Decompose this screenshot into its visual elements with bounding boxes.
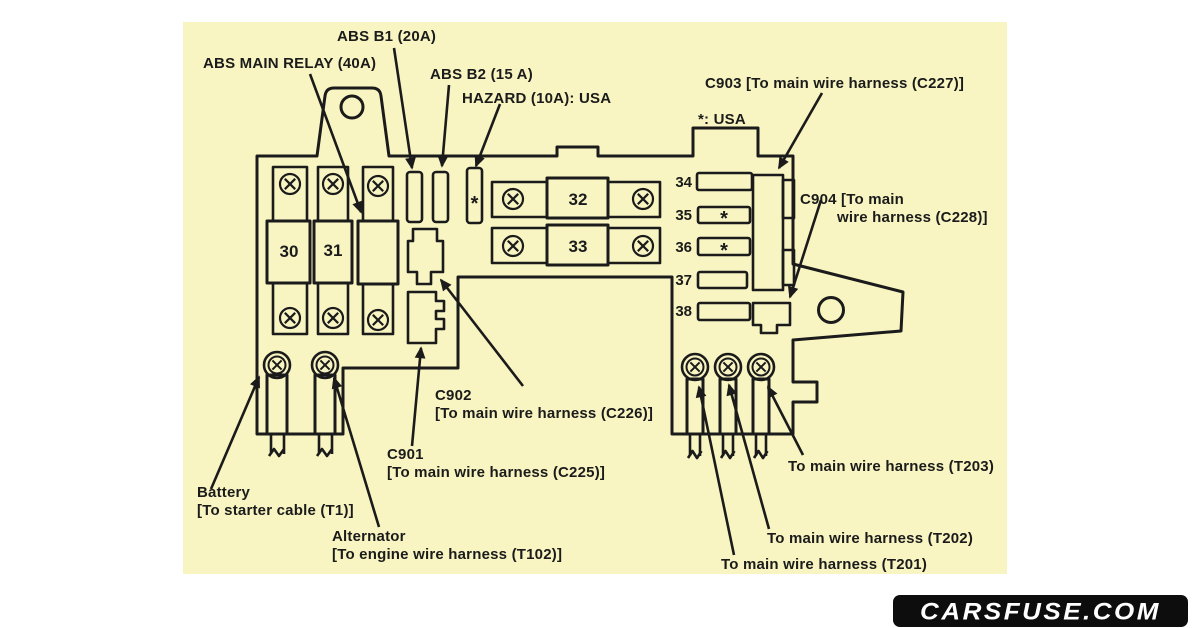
screw-icon [368,310,388,330]
fuse-32-number: 32 [569,190,588,209]
terminal-screw-icon [715,354,741,380]
terminal-wire-t202 [721,434,735,458]
usa-note-label: *: USA [698,111,746,128]
terminal-post-t201 [687,379,703,434]
leader-battery [211,377,259,489]
c902-desc-label: [To main wire harness (C226)] [435,405,653,422]
terminal-screw-icon [748,354,774,380]
alternator-desc-label: [To engine wire harness (T102)] [332,546,562,563]
fuse-box-diagram: 30 31 * 32 33 34 35 36 37 38 * [0,0,1200,628]
t203-label: To main wire harness (T203) [788,458,994,475]
screw-icon [368,176,388,196]
fuse-30-number: 30 [280,242,299,261]
fuse-36-asterisk: * [720,240,728,262]
t201-label: To main wire harness (T201) [721,556,927,573]
battery-terminal-post [267,375,287,434]
terminal-wire-t201 [688,434,702,458]
leader-abs-b2 [442,85,449,166]
battery-name-label: Battery [197,484,251,501]
fuse-35-asterisk: * [720,208,728,230]
leader-c903 [779,93,822,168]
abs-b2-label: ABS B2 (15 A) [430,66,533,83]
mounting-hole-top-icon [341,96,363,118]
fuse-37 [698,272,747,288]
battery-desc-label: [To starter cable (T1)] [197,502,354,519]
c901-name-label: C901 [387,446,424,463]
terminal-screw-icon [682,354,708,380]
terminal-wire-t203 [754,434,768,458]
screw-icon [633,236,653,256]
terminal-post-t203 [753,379,769,434]
connector-c902 [408,229,443,284]
c904-label-line1: C904 [To main [800,191,904,208]
screw-icon [280,174,300,194]
hazard-asterisk: * [471,193,479,215]
terminal-screw-icon [312,352,338,378]
battery-wire [269,434,284,456]
leader-c901 [412,348,421,446]
fuse-36-number: 36 [675,239,692,256]
fuse-34 [697,173,752,190]
alternator-name-label: Alternator [332,528,406,545]
abs-b1-label: ABS B1 (20A) [337,28,436,45]
c904-label-line2: wire harness (C228)] [836,209,988,226]
leader-abs-b1 [394,48,412,168]
fuse-abs-b2 [433,172,448,222]
c901-desc-label: [To main wire harness (C225)] [387,464,605,481]
alternator-terminal-post [315,375,335,434]
mounting-hole-bracket-icon [819,298,844,323]
screw-icon [633,189,653,209]
leader-c902 [441,280,523,386]
fuse-abs-b1 [407,172,422,222]
fuse-34-number: 34 [675,174,692,191]
fuse-35-number: 35 [675,207,692,224]
carsfuse-watermark-badge: CARSFUSE.COM [893,595,1188,627]
fuse-31-number: 31 [324,241,343,260]
fuse-37-number: 37 [675,272,692,289]
screw-icon [503,236,523,256]
fuse-38 [698,303,750,320]
carsfuse-watermark-text: CARSFUSE.COM [920,597,1161,626]
screw-icon [280,308,300,328]
abs-main-relay-label: ABS MAIN RELAY (40A) [203,55,376,72]
connector-c901 [408,292,444,343]
c902-name-label: C902 [435,387,472,404]
connector-c904 [753,303,790,333]
connector-c903 [753,175,794,290]
t202-label: To main wire harness (T202) [767,530,973,547]
c903-label: C903 [To main wire harness (C227)] [705,75,964,92]
fuse-box-diagram-page: 30 31 * 32 33 34 35 36 37 38 * [0,0,1200,628]
screw-icon [323,308,343,328]
leader-t203 [768,387,803,455]
fuse-38-number: 38 [675,303,692,320]
hazard-label: HAZARD (10A): USA [462,90,611,107]
terminal-post-t202 [720,379,736,434]
screw-icon [323,174,343,194]
terminal-screw-icon [264,352,290,378]
fuse-33-number: 33 [569,237,588,256]
screw-icon [503,189,523,209]
alternator-wire [317,434,332,456]
